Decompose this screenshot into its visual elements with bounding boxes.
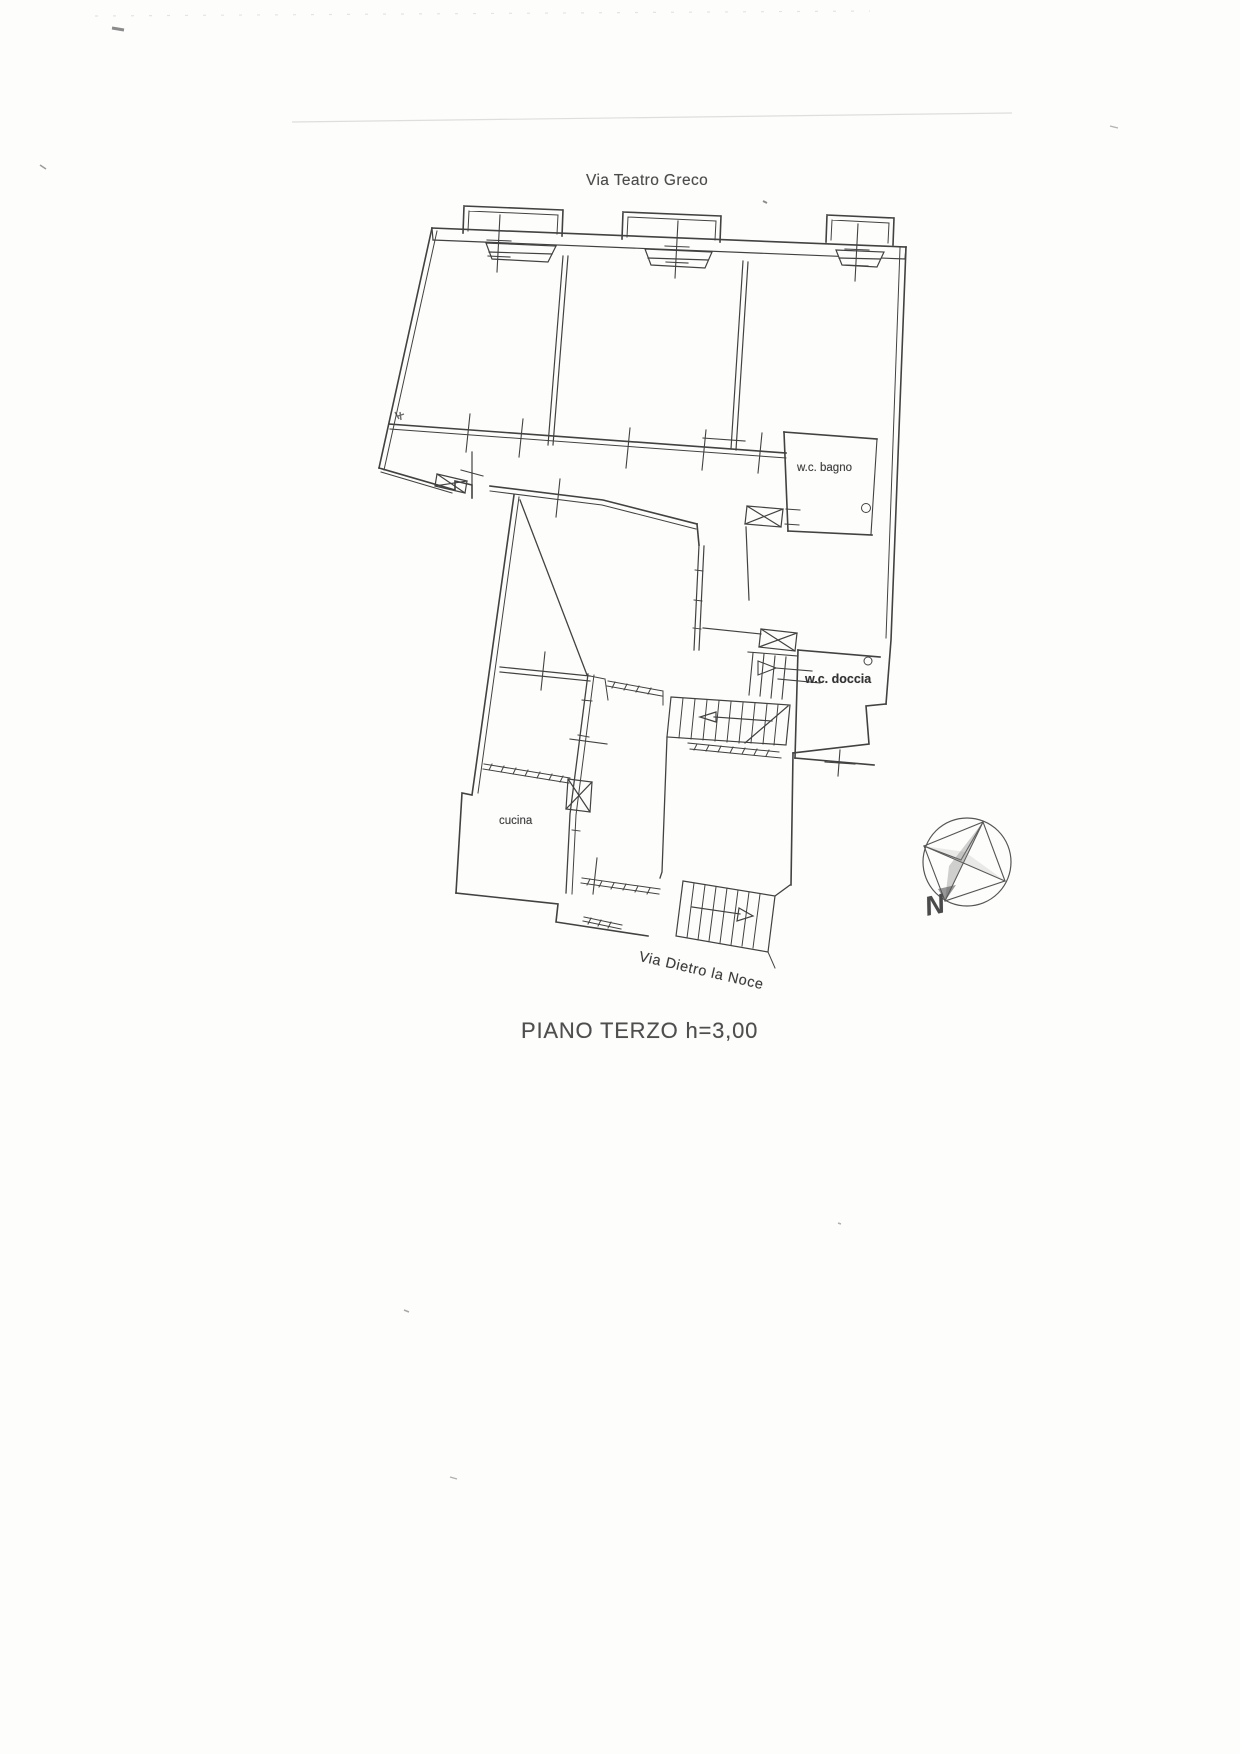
room-label-cucina: cucina [499, 815, 532, 827]
staircase-external [676, 881, 790, 968]
building-outline [379, 228, 906, 936]
elevator-shaft-icon [759, 629, 797, 651]
floor-caption: PIANO TERZO h=3,00 [521, 1018, 758, 1044]
street-label-via-teatro-greco: Via Teatro Greco [586, 172, 708, 190]
room-label-wc-doccia: w.c. doccia [805, 672, 871, 686]
interior-walls-upper [389, 256, 786, 458]
floor-plan-drawing [0, 0, 1240, 1754]
staircase-main [667, 697, 790, 745]
elevator-shaft-icon [566, 779, 592, 812]
scanned-floor-plan-page: Via Teatro Greco w.c. bagno w.c. doccia … [0, 0, 1240, 1754]
balcony [826, 215, 894, 245]
bagno-lobby-wall [746, 527, 749, 600]
corridor-walls [490, 486, 761, 650]
bagno-walls [784, 432, 877, 535]
staircase-upper-flight [748, 652, 812, 699]
elevator-shaft-icon [745, 506, 800, 527]
room-label-wc-bagno: w.c. bagno [797, 462, 852, 474]
stairwell-left-wall [660, 737, 667, 878]
stair-landing-hatch [688, 743, 781, 758]
